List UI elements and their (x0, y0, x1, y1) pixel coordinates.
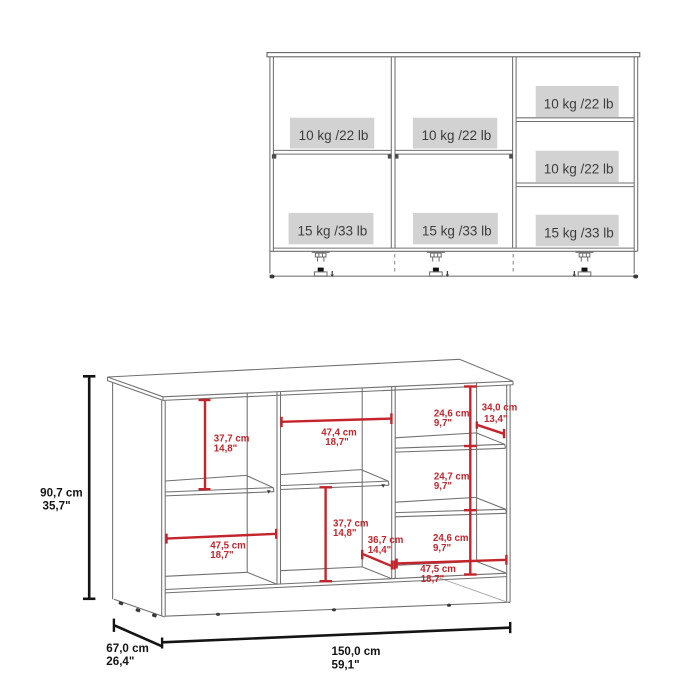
svg-text:14,4": 14,4" (368, 545, 391, 556)
svg-text:10 kg /22 lb: 10 kg /22 lb (544, 97, 614, 112)
svg-text:150,0 cm: 150,0 cm (332, 645, 381, 658)
svg-text:67,0 cm: 67,0 cm (106, 642, 149, 655)
svg-text:18,7": 18,7" (421, 574, 444, 585)
svg-text:34,0 cm: 34,0 cm (482, 403, 518, 414)
svg-text:9,7": 9,7" (434, 418, 452, 429)
svg-text:15 kg /33 lb: 15 kg /33 lb (544, 225, 614, 240)
svg-text:59,1": 59,1" (332, 658, 360, 671)
svg-text:10 kg /22 lb: 10 kg /22 lb (544, 161, 614, 176)
svg-text:15 kg /33 lb: 15 kg /33 lb (298, 224, 368, 239)
svg-text:18,7": 18,7" (325, 437, 348, 448)
svg-text:26,4": 26,4" (106, 655, 134, 668)
svg-text:10 kg /22 lb: 10 kg /22 lb (422, 128, 492, 143)
svg-text:10 kg /22 lb: 10 kg /22 lb (299, 128, 369, 143)
svg-text:35,7": 35,7" (43, 499, 71, 512)
svg-text:14,8": 14,8" (333, 528, 356, 539)
svg-text:14,8": 14,8" (214, 443, 237, 454)
svg-text:18,7": 18,7" (210, 550, 233, 561)
svg-text:13,4": 13,4" (484, 414, 507, 425)
svg-text:9,7": 9,7" (433, 543, 451, 554)
svg-text:9,7": 9,7" (434, 481, 452, 492)
svg-text:90,7 cm: 90,7 cm (40, 486, 83, 499)
svg-text:15 kg /33 lb: 15 kg /33 lb (422, 224, 492, 239)
